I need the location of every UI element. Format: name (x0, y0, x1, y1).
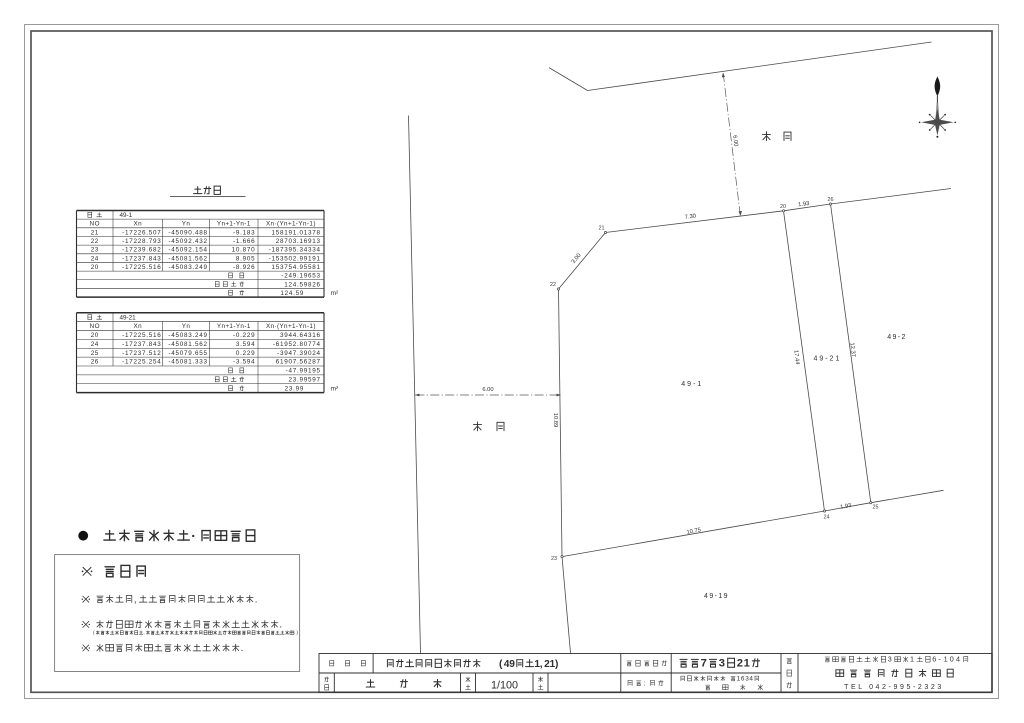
svg-text:26: 26 (828, 197, 834, 203)
svg-text:Xn·(Yn+1-Yn-1): Xn·(Yn+1-Yn-1) (266, 323, 316, 330)
svg-text:6: 6 (932, 655, 936, 664)
svg-text:49-1: 49-1 (120, 212, 133, 219)
svg-text:-187395.34334: -187395.34334 (269, 247, 321, 254)
svg-text:-17237.843: -17237.843 (122, 255, 161, 262)
svg-text:·: · (191, 528, 196, 544)
svg-text:49-21: 49-21 (120, 314, 137, 321)
svg-text:158191.01378: 158191.01378 (272, 229, 321, 236)
svg-text:7: 7 (701, 658, 707, 670)
svg-text:25: 25 (873, 505, 879, 511)
svg-text:Xn: Xn (133, 221, 142, 228)
svg-text:m²: m² (331, 385, 339, 392)
svg-text:-17239.682: -17239.682 (122, 247, 161, 254)
svg-text::: : (644, 680, 646, 687)
svg-text:24: 24 (91, 255, 99, 262)
svg-text:-45079.655: -45079.655 (168, 350, 207, 357)
svg-text:-45092.432: -45092.432 (168, 238, 207, 245)
svg-text:TEL 042-995-2323: TEL 042-995-2323 (844, 684, 944, 691)
svg-text:-45083.249: -45083.249 (168, 332, 207, 339)
svg-text:23: 23 (91, 247, 99, 254)
svg-text:24: 24 (824, 514, 830, 520)
svg-text:3: 3 (888, 655, 892, 664)
svg-text:-17237.512: -17237.512 (122, 350, 161, 357)
svg-text:10.870: 10.870 (232, 247, 256, 254)
svg-text:-45092.154: -45092.154 (168, 247, 207, 254)
svg-text:1: 1 (910, 655, 914, 664)
svg-text:): ) (555, 659, 558, 670)
svg-text:-45081.562: -45081.562 (168, 341, 207, 348)
svg-text:-17225.254: -17225.254 (122, 359, 161, 366)
svg-text:4: 4 (956, 655, 960, 664)
svg-text:-3.594: -3.594 (233, 359, 255, 366)
svg-text:20: 20 (91, 264, 99, 271)
svg-text:0: 0 (950, 655, 954, 664)
svg-text:,: , (134, 594, 137, 605)
svg-text:.: . (279, 620, 282, 631)
svg-text:24: 24 (91, 341, 99, 348)
svg-text:22: 22 (550, 282, 556, 288)
svg-text:10.89: 10.89 (552, 413, 558, 428)
svg-text:23.99: 23.99 (285, 385, 305, 392)
svg-text:8.905: 8.905 (236, 255, 256, 262)
svg-text:-153502.99191: -153502.99191 (269, 255, 321, 262)
svg-text:Xn: Xn (133, 323, 142, 330)
svg-text:-249.19653: -249.19653 (281, 273, 320, 280)
svg-text:49-2: 49-2 (887, 334, 907, 341)
svg-text:1: 1 (744, 658, 750, 670)
svg-text:124.59826: 124.59826 (284, 281, 321, 288)
svg-text:3.594: 3.594 (236, 341, 256, 348)
svg-text:-9.183: -9.183 (233, 229, 255, 236)
svg-text:NO: NO (90, 323, 100, 330)
svg-text:Yn: Yn (182, 221, 191, 228)
svg-text:124.59: 124.59 (280, 290, 304, 297)
svg-text:-3947.39024: -3947.39024 (277, 350, 321, 357)
svg-text:49-1: 49-1 (681, 381, 703, 388)
svg-text:21: 21 (91, 229, 99, 236)
svg-text:-17225.516: -17225.516 (122, 264, 161, 271)
svg-text:-45081.562: -45081.562 (168, 255, 207, 262)
svg-text:.: . (255, 594, 258, 605)
svg-text:,: , (143, 631, 144, 636)
svg-text:26: 26 (91, 359, 99, 366)
svg-text:6.00: 6.00 (482, 387, 493, 393)
svg-text:3: 3 (719, 658, 725, 670)
svg-text:20: 20 (780, 204, 786, 210)
svg-text:49-21: 49-21 (813, 356, 841, 363)
svg-text:,: , (540, 659, 543, 670)
svg-text:-47.99195: -47.99195 (286, 368, 321, 375)
svg-text:-45083.249: -45083.249 (168, 264, 207, 271)
svg-text:Yn+1-Yn-1: Yn+1-Yn-1 (217, 323, 251, 330)
svg-text:23: 23 (551, 556, 557, 562)
svg-text:-45081.333: -45081.333 (168, 359, 207, 366)
svg-text:m²: m² (331, 290, 339, 297)
svg-text:3944.64316: 3944.64316 (280, 332, 321, 339)
svg-text:.: . (241, 643, 244, 654)
svg-text:-1.666: -1.666 (233, 238, 255, 245)
svg-text:23.99597: 23.99597 (289, 376, 321, 383)
svg-text:61907.56287: 61907.56287 (276, 359, 321, 366)
svg-text:-17237.843: -17237.843 (122, 341, 161, 348)
svg-text:-17226.507: -17226.507 (122, 229, 161, 236)
svg-text:25: 25 (91, 350, 99, 357)
svg-text:28703.16913: 28703.16913 (276, 238, 321, 245)
svg-text:-61952.80774: -61952.80774 (273, 341, 321, 348)
svg-text:-8.926: -8.926 (233, 264, 255, 271)
svg-text:Yn: Yn (182, 323, 191, 330)
svg-text:-0.229: -0.229 (233, 332, 255, 339)
svg-text:1/100: 1/100 (491, 679, 518, 691)
svg-text:21: 21 (599, 226, 605, 232)
svg-text:153754.95581: 153754.95581 (272, 264, 321, 271)
svg-text:4: 4 (749, 676, 753, 683)
svg-text:Yn+1-Yn-1: Yn+1-Yn-1 (217, 221, 251, 228)
svg-text:Xn·(Yn+1-Yn-1): Xn·(Yn+1-Yn-1) (266, 221, 316, 228)
svg-text:-17228.793: -17228.793 (122, 238, 161, 245)
svg-text:9: 9 (509, 659, 515, 670)
svg-text:0.229: 0.229 (236, 350, 256, 357)
svg-text:(: ( (499, 659, 503, 670)
svg-text:22: 22 (91, 238, 99, 245)
svg-text:2: 2 (737, 658, 743, 670)
svg-text:-17225.516: -17225.516 (122, 332, 161, 339)
svg-text:49-19: 49-19 (704, 593, 729, 600)
svg-text:1: 1 (944, 655, 948, 664)
svg-text:-45090.488: -45090.488 (168, 229, 207, 236)
svg-text:NO: NO (90, 221, 100, 228)
svg-text:20: 20 (91, 332, 99, 339)
